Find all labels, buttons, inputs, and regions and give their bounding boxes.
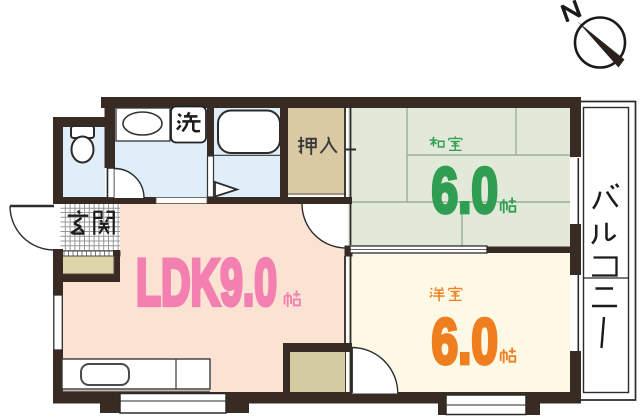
svg-text:LDK9.0: LDK9.0 [136,245,277,319]
svg-text:6.0: 6.0 [432,306,499,378]
svg-text:6.0: 6.0 [432,155,499,227]
